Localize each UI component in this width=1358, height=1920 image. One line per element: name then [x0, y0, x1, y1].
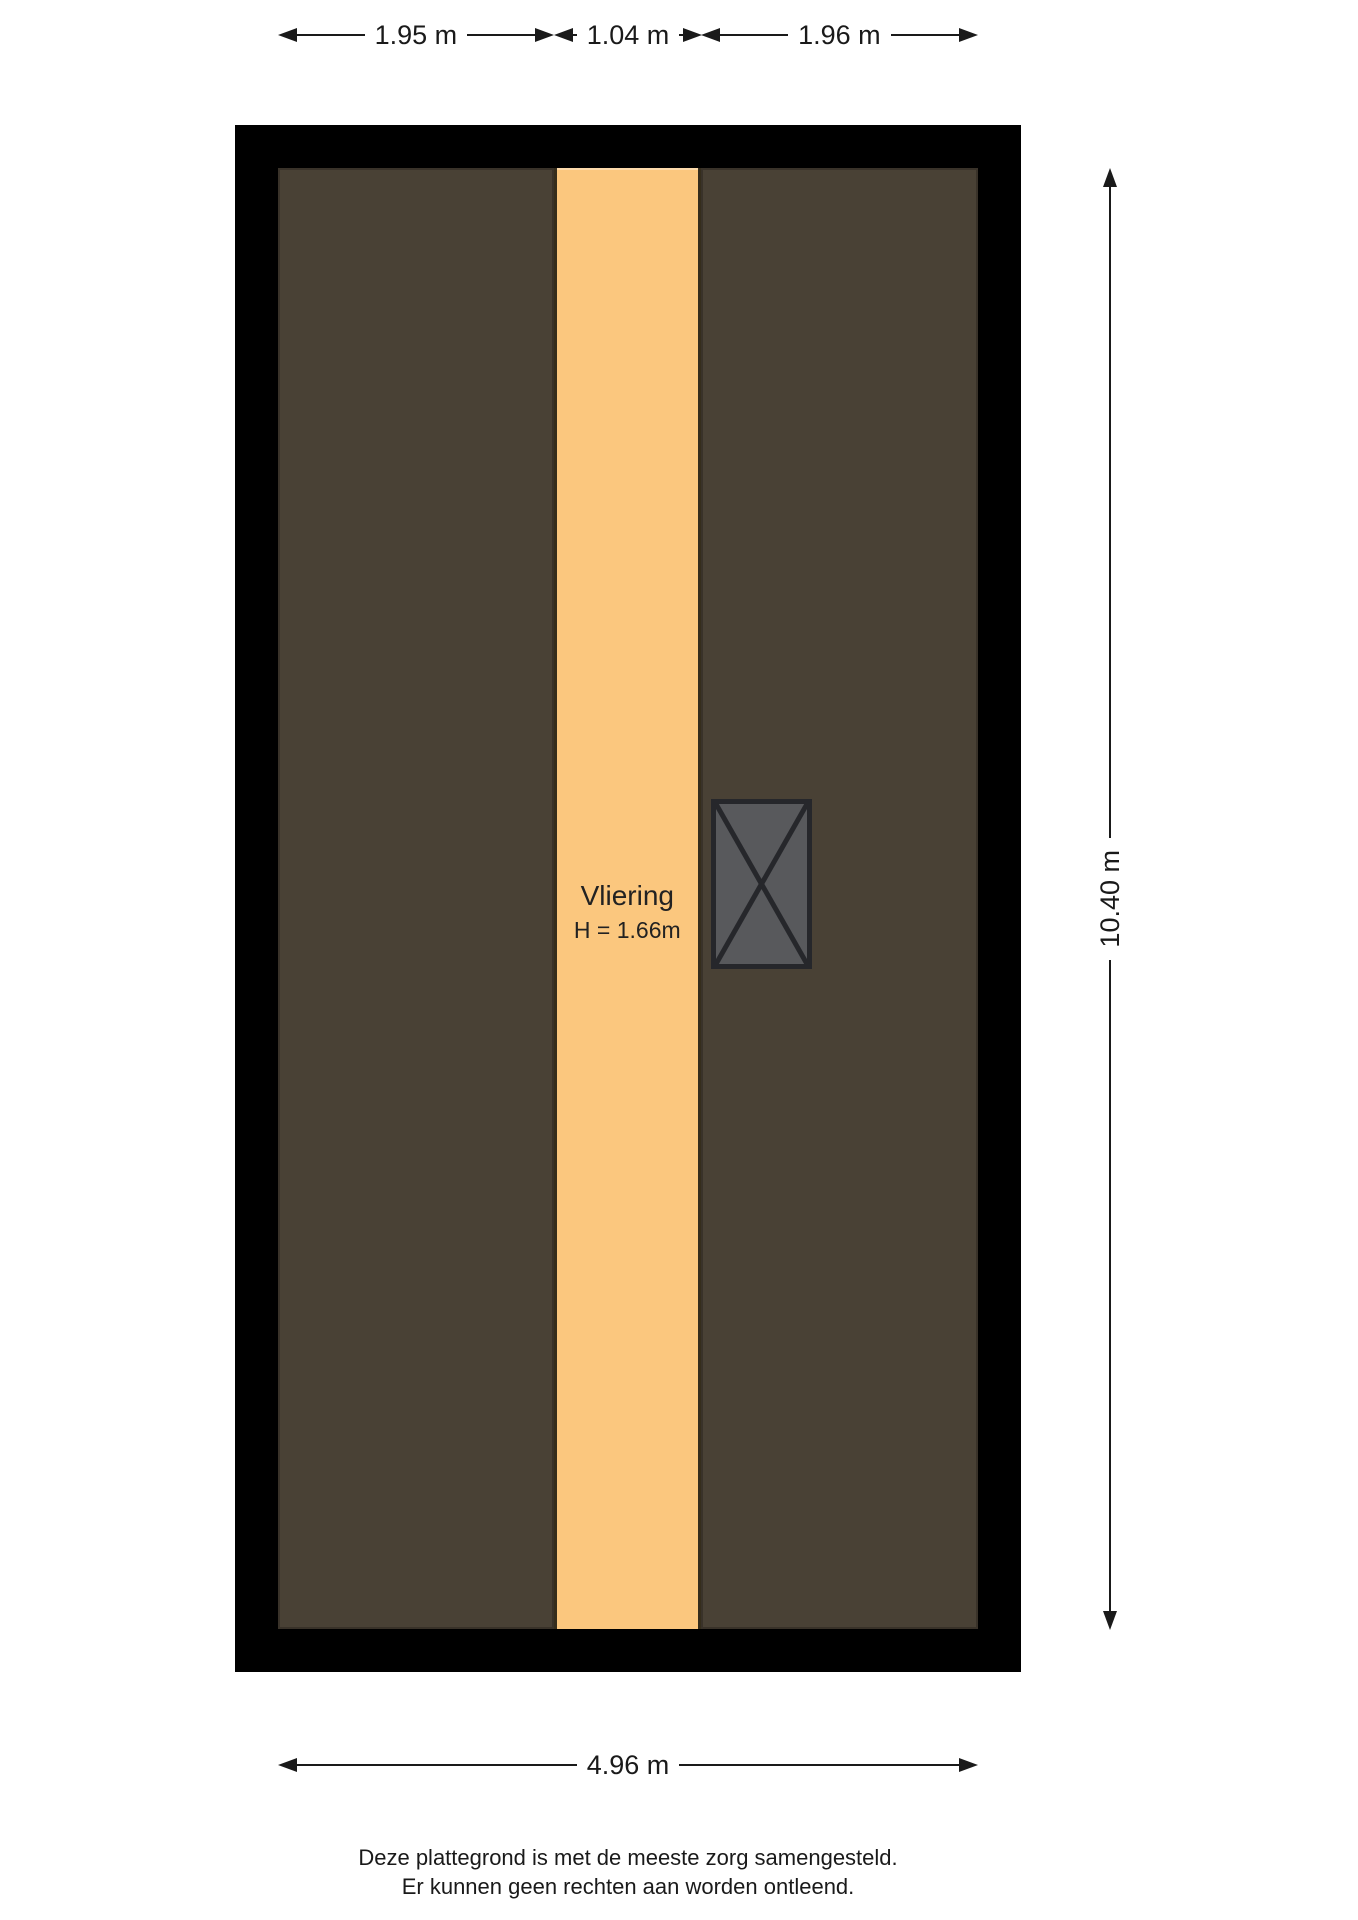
dimension-segment-left: 1.95 m: [278, 22, 554, 49]
floorplan-page: 1.95 m 1.04 m 1.96 m Vliering H = 1.66m: [0, 0, 1358, 1920]
dimension-line: [297, 34, 365, 36]
dimension-label: 1.96 m: [798, 22, 881, 49]
stairs-cross-icon: [716, 804, 807, 964]
arrow-right-icon: [535, 28, 554, 42]
room-label: Vliering H = 1.66m: [557, 880, 698, 945]
dimension-top: 1.95 m 1.04 m 1.96 m: [278, 20, 978, 50]
dimension-line: [1109, 960, 1111, 1611]
dimension-label: 10.40 m: [1097, 850, 1124, 948]
arrow-right-icon: [683, 28, 702, 42]
arrow-left-icon: [701, 28, 720, 42]
arrow-right-icon: [959, 1758, 978, 1772]
dimension-bottom: 4.96 m: [278, 1750, 978, 1780]
roof-area-right: [701, 168, 978, 1629]
arrow-up-icon: [1103, 168, 1117, 187]
arrow-right-icon: [959, 28, 978, 42]
disclaimer: Deze plattegrond is met de meeste zorg s…: [235, 1843, 1021, 1901]
arrow-left-icon: [278, 1758, 297, 1772]
arrow-left-icon: [554, 28, 573, 42]
dimension-segment-right: 1.96 m: [701, 22, 978, 49]
room-name: Vliering: [557, 880, 698, 912]
dimension-segment-middle: 1.04 m: [554, 22, 701, 49]
disclaimer-line-1: Deze plattegrond is met de meeste zorg s…: [235, 1843, 1021, 1872]
dimension-label: 4.96 m: [587, 1752, 670, 1779]
dimension-line: [573, 34, 577, 36]
outer-walls: Vliering H = 1.66m: [235, 125, 1021, 1672]
dimension-line: [891, 34, 959, 36]
stairs-hatch: [711, 799, 812, 969]
dimension-line: [467, 34, 535, 36]
dimension-line: [679, 1764, 959, 1766]
room-height-label: H = 1.66m: [557, 917, 698, 945]
dimension-right: 10.40 m: [1093, 168, 1127, 1630]
roof-area-left: [278, 168, 554, 1629]
disclaimer-line-2: Er kunnen geen rechten aan worden ontlee…: [235, 1872, 1021, 1901]
dimension-label: 1.95 m: [375, 22, 458, 49]
arrow-down-icon: [1103, 1611, 1117, 1630]
dimension-line: [720, 34, 788, 36]
dimension-label: 1.04 m: [587, 22, 670, 49]
arrow-left-icon: [278, 28, 297, 42]
dimension-line: [1109, 187, 1111, 838]
loft-floor: Vliering H = 1.66m: [554, 168, 701, 1629]
dimension-segment-total: 4.96 m: [278, 1752, 978, 1779]
dimension-line: [297, 1764, 577, 1766]
